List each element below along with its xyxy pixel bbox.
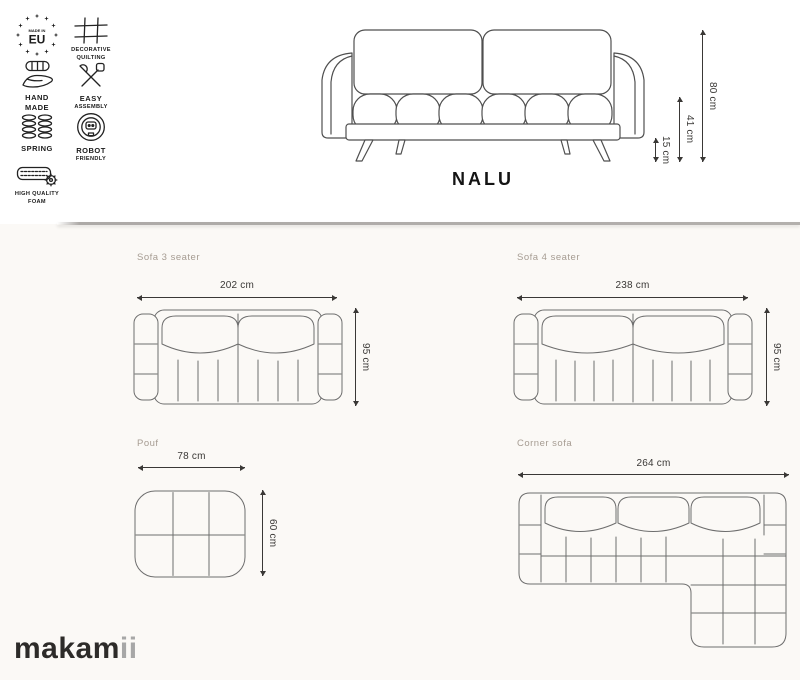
badge-decorative-quilting: DECORATIVE QUILTING: [62, 17, 120, 62]
sofa-3-seater-top-view-drawing: [132, 306, 344, 408]
badge-label: EASY: [74, 94, 107, 104]
sofa-4-seater-top-view-drawing: [512, 306, 754, 408]
sofa-front-view-drawing: [313, 28, 653, 164]
brand-logo-accent: ii: [120, 632, 138, 665]
dimension-seat-height: 41 cm: [683, 97, 695, 162]
variant-label-pouf: Pouf: [137, 438, 159, 449]
brand-logo-main: makam: [14, 632, 120, 665]
badge-label: ROBOT: [76, 146, 106, 156]
badge-spring: SPRING: [8, 113, 66, 154]
dimension-sofa3-width: 202 cm: [137, 280, 337, 291]
badge-hand-made: HAND MADE: [8, 60, 66, 113]
badge-label: HAND: [25, 93, 49, 103]
section-divider: [57, 222, 800, 225]
corner-sofa-top-view-drawing: [514, 487, 791, 652]
dimension-line-pouf-width: [138, 467, 245, 468]
dimension-line-sofa3-depth: [355, 308, 356, 406]
badge-label: ASSEMBLY: [74, 104, 107, 112]
badge-label: MADE: [25, 103, 49, 113]
dimension-line-sofa3-width: [137, 297, 337, 298]
dimension-line-leg-height: [655, 138, 656, 162]
quilting-icon: [74, 17, 108, 44]
product-title: NALU: [313, 169, 653, 190]
robot-friendly-icon: [74, 112, 108, 143]
dimension-line-seat-height: [679, 97, 680, 162]
dimension-corner-width: 264 cm: [518, 458, 789, 469]
variant-label-sofa-4-seater: Sofa 4 seater: [517, 252, 580, 263]
svg-text:EU: EU: [29, 33, 46, 47]
spring-icon: [20, 113, 54, 141]
easy-assembly-icon: [75, 60, 107, 91]
dimension-sofa4-depth: 95 cm: [770, 308, 782, 406]
badge-high-quality-foam: HIGH QUALITY FOAM: [2, 161, 72, 206]
product-dimension-sheet: MADE IN EU DECORATIVE QUILTING HAND MADE: [0, 0, 800, 680]
dimension-pouf-width: 78 cm: [138, 451, 245, 462]
dimension-sofa3-depth: 95 cm: [359, 308, 371, 406]
badge-easy-assembly: EASY ASSEMBLY: [62, 60, 120, 111]
badge-robot-friendly: ROBOT FRIENDLY: [62, 112, 120, 163]
badge-label: HIGH QUALITY: [15, 191, 59, 199]
dimension-line-sofa4-width: [517, 297, 748, 298]
badge-made-in-eu: MADE IN EU: [8, 12, 66, 58]
variant-label-corner-sofa: Corner sofa: [517, 438, 572, 449]
dimension-sofa4-width: 238 cm: [517, 280, 748, 291]
dimension-line-sofa4-depth: [766, 308, 767, 406]
dimension-line-pouf-depth: [262, 490, 263, 576]
badge-label: FOAM: [15, 199, 59, 207]
badge-label: DECORATIVE: [71, 47, 111, 55]
badge-label: FRIENDLY: [76, 156, 106, 164]
dimension-leg-height: 15 cm: [659, 131, 671, 169]
dimension-line-corner-width: [518, 474, 789, 475]
dimension-total-height: 80 cm: [706, 30, 718, 162]
badge-label: SPRING: [21, 144, 53, 154]
dimension-pouf-depth: 60 cm: [266, 490, 278, 576]
dimension-line-total-height: [702, 30, 703, 162]
brand-logo: makamii: [14, 632, 138, 666]
variant-label-sofa-3-seater: Sofa 3 seater: [137, 252, 200, 263]
foam-icon: [16, 161, 58, 188]
hand-made-icon: [18, 60, 56, 90]
made-in-eu-icon: MADE IN EU: [14, 12, 60, 58]
pouf-top-view-drawing: [133, 489, 247, 579]
